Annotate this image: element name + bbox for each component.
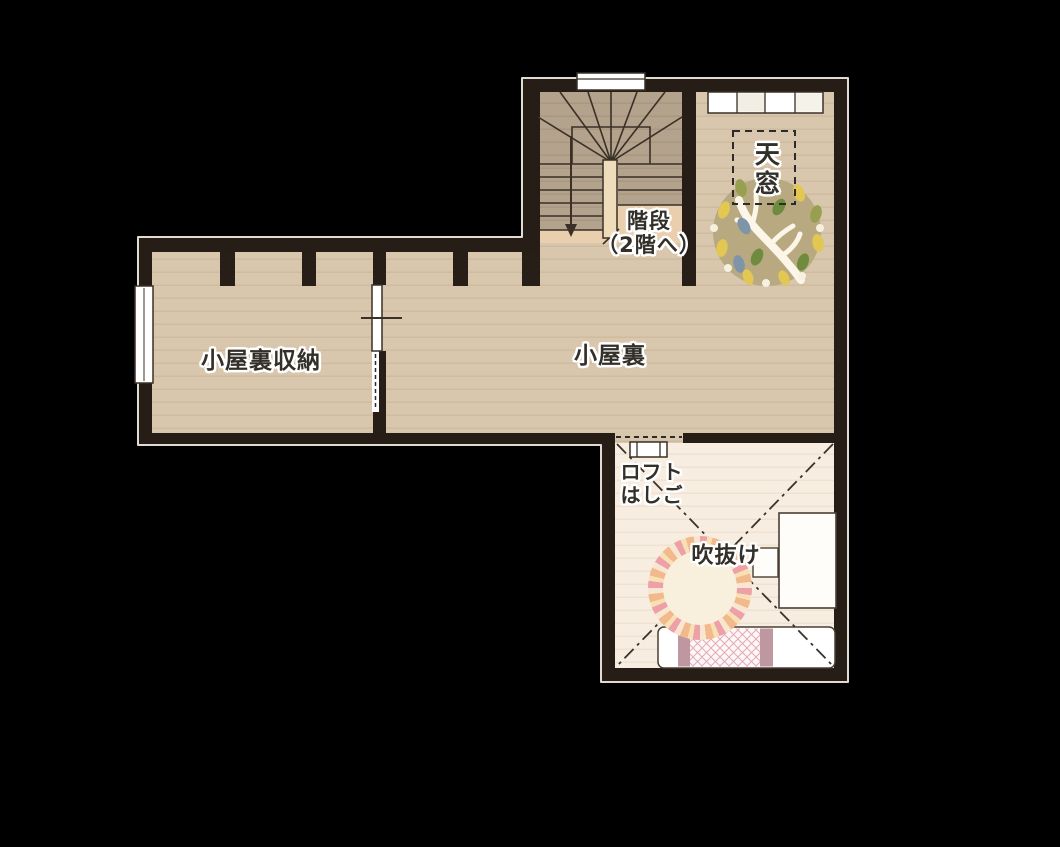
side-window [135,286,153,383]
attic-storage-label: 小屋裏収納 [201,348,321,374]
loft-ladder-icon [630,442,667,457]
top-window [577,73,645,90]
void-label: 吹抜け [691,543,760,568]
stairs-label: 階段 （2階へ） [597,209,701,257]
loft-ladder-label-line2: はしご [621,484,684,507]
stairs-label-line1: 階段 [597,209,701,233]
floor-plan: 小屋裏収納 小屋裏 階段 （2階へ） 天窓 ロフト はしご 吹抜け [0,0,1060,847]
floor-plan-graphic [0,0,1060,847]
shelf-unit [708,92,823,113]
desk [779,513,836,608]
skylight-label: 天窓 [751,141,780,199]
stairs-label-line2: （2階へ） [597,233,701,257]
loft-ladder-label: ロフト はしご [621,461,684,507]
loft-ladder-label-line1: ロフト [621,461,684,484]
attic-label: 小屋裏 [574,343,646,369]
